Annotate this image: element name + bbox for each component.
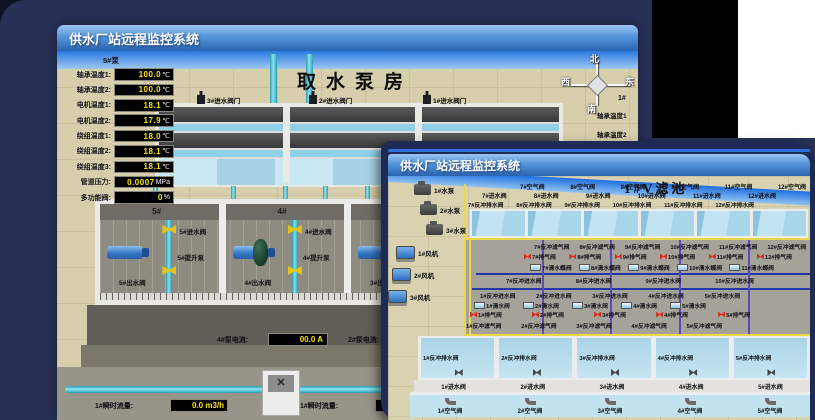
sensor-label: 绕组温度1: <box>61 131 111 141</box>
air-valve-label[interactable]: 11#空气阀 <box>725 182 753 191</box>
led-display: 18.1℃ <box>114 145 174 158</box>
valve-icon <box>670 302 681 309</box>
outlet-valve-label: 4#出水阀 <box>244 277 271 287</box>
valve-icon <box>718 312 725 318</box>
exhaust-valve-label: 7#排气阀 <box>532 252 556 261</box>
led-display: 18.1℃ <box>114 99 174 112</box>
bay-number: 5# <box>152 207 161 216</box>
equipment-item[interactable]: 3#风机 <box>388 290 430 303</box>
degassing-tank <box>253 239 268 266</box>
led-unit: ℃ <box>162 86 170 94</box>
inlet-valve-label: 4#进水阀 <box>305 226 332 236</box>
led-value: 100.0 <box>139 70 162 79</box>
valve-icon <box>524 254 531 260</box>
valve-icon <box>685 398 696 405</box>
drain-valve-label[interactable]: 2#反冲排水阀 <box>501 353 536 362</box>
led-value: 100.0 <box>139 85 162 94</box>
intake-valve[interactable]: 1#进水阀门 <box>423 91 466 105</box>
backwash-air-valve-label[interactable]: 10#反冲滤气阀 <box>670 242 709 251</box>
intake-valve-label: 1#进水阀门 <box>433 95 466 105</box>
clean-water-valve-label: 9#清水蝶阀 <box>640 263 670 272</box>
backwash-air-valve-label[interactable]: 4#反冲滤气阀 <box>631 321 666 330</box>
valve-icon <box>569 254 576 260</box>
tank-water-channel <box>159 124 559 133</box>
filter-cell <box>472 211 525 236</box>
valve-icon <box>605 398 616 405</box>
drain-valve-label[interactable]: 1#反冲排水阀 <box>423 353 458 362</box>
valve-icon <box>660 254 667 260</box>
air-valve-label[interactable]: 8#空气阀 <box>570 182 595 191</box>
clean-water-valve-label: 4#清水阀 <box>633 301 657 310</box>
valve-icon <box>474 302 485 309</box>
pump-current-label: 4#泵电流: <box>217 335 248 345</box>
clean-water-valve[interactable]: 4#清水阀 <box>621 301 657 310</box>
valve-icon[interactable] <box>611 369 619 376</box>
valve-gallery: 7#反冲滤气阀8#反冲滤气阀9#反冲滤气阀10#反冲滤气阀11#反冲滤气阀12#… <box>466 238 810 336</box>
sensor-row: 电机温度1: 18.1℃ <box>61 99 186 112</box>
air-valve-label[interactable]: 7#空气阀 <box>520 182 545 191</box>
pipe <box>472 288 810 290</box>
equipment-label: 2#水泵 <box>440 205 460 215</box>
led-display: 0.0007MPa <box>114 176 174 189</box>
valve-icon <box>656 312 663 318</box>
inlet-valve-label[interactable]: 4#进水阀 <box>652 382 731 391</box>
drain-valve-label[interactable]: 7#反冲排水阀 <box>468 200 503 209</box>
led-display: 0.0 m3/h <box>170 399 228 412</box>
led-unit: ℃ <box>162 71 170 79</box>
equipment-item[interactable]: 2#风机 <box>392 268 434 281</box>
sensor-row: 多功能阀: 0% <box>61 191 186 204</box>
flow-meter-device[interactable]: ✕ <box>262 370 300 416</box>
equipment-item[interactable]: 2#水泵 <box>420 204 460 215</box>
exhaust-valve-label: 8#排气阀 <box>577 252 601 261</box>
intake-valve[interactable]: 3#进水阀门 <box>197 91 240 105</box>
inlet-valve-label: 5#进水阀 <box>179 226 206 236</box>
equipment-label: 3#风机 <box>410 292 430 302</box>
led-unit: ℃ <box>162 117 170 125</box>
window-filter-pool: 供水厂站远程监控系统 1#V滤池 1#水泵 2#水泵 3#水泵 1#风 <box>381 141 815 420</box>
valve-icon <box>628 264 639 271</box>
valve-icon <box>423 91 431 104</box>
filter-cell: 5#反冲排水阀 <box>734 338 807 378</box>
outlet-valve-label: 5#出水阀 <box>119 277 146 287</box>
backwash-air-valve-label[interactable]: 9#反冲滤气阀 <box>625 242 660 251</box>
filter-cell: 4#反冲排水阀 <box>656 338 729 378</box>
pump-bay: 4# 4#进水阀 4#提升泵 4#出水阀 <box>226 204 352 293</box>
backwash-inlet-valve-label[interactable]: 3#反冲进水阀 <box>592 291 627 300</box>
intake-valve-label: 3#进水阀门 <box>207 95 240 105</box>
front-window-title: 供水厂站远程监控系统 <box>400 157 520 174</box>
back-window-title: 供水厂站远程监控系统 <box>69 29 199 48</box>
valve-icon <box>615 254 622 260</box>
led-display: 100.0℃ <box>114 84 174 97</box>
air-valve-label: 4#空气阀 <box>678 406 703 415</box>
flow-label: 1#瞬时流量: <box>300 401 338 411</box>
sensor-row: 绕组温度1: 18.0℃ <box>61 130 186 143</box>
backwash-inlet-valve-label[interactable]: 1#反冲进水阀 <box>480 291 515 300</box>
led-value: 18.1 <box>144 101 162 110</box>
valve-icon <box>197 91 205 104</box>
air-valve[interactable]: 3#空气阀 <box>570 395 650 417</box>
valve-icon <box>309 91 317 104</box>
led-display: 00.0 A <box>268 333 328 346</box>
drain-valve-label[interactable]: 4#反冲排水阀 <box>658 353 693 362</box>
valve-icon <box>765 398 776 405</box>
exhaust-valve[interactable]: 2#排气阀 <box>532 310 564 319</box>
exhaust-valve[interactable]: 5#排气阀 <box>718 310 750 319</box>
air-valve[interactable]: 1#空气阀 <box>410 395 490 417</box>
clean-water-valve[interactable]: 1#清水阀 <box>474 301 510 310</box>
front-window-titlebar[interactable]: 供水厂站远程监控系统 <box>388 154 810 176</box>
led-unit: ℃ <box>162 147 170 155</box>
drain-valve-label[interactable]: 5#反冲排水阀 <box>736 353 771 362</box>
air-valve-label: 1#空气阀 <box>438 406 463 415</box>
clean-water-valve[interactable]: 10#清水蝶阀 <box>677 263 722 272</box>
filter-cell <box>584 211 637 236</box>
valve-icon <box>445 398 456 405</box>
sensor-row: 绕组温度2: 18.1℃ <box>61 145 186 158</box>
sensor-label: 管道压力: <box>61 177 111 187</box>
pipe <box>65 386 410 393</box>
desktop-white-region <box>738 0 815 138</box>
flow-meter-screen: ✕ <box>268 375 294 392</box>
led-unit: ℃ <box>162 101 170 109</box>
clean-water-valve[interactable]: 11#清水蝶阀 <box>729 263 774 272</box>
clean-water-valve-label: 2#清水阀 <box>535 301 559 310</box>
sensor-row: 管道压力: 0.0007MPa <box>61 176 186 189</box>
pump-label: 4#提升泵 <box>303 252 330 262</box>
clean-water-valve[interactable]: 7#清水蝶阀 <box>530 263 572 272</box>
pump-tag: 5#泵 <box>103 55 186 68</box>
backwash-inlet-valve-label[interactable]: 8#反冲进水阀 <box>576 276 611 285</box>
led-display: 0% <box>114 191 174 204</box>
valve-icon <box>757 254 764 260</box>
equipment-item[interactable]: 1#水泵 <box>414 184 454 195</box>
inlet-valve-label[interactable]: 9#进水阀 <box>586 191 611 200</box>
valve-icon <box>579 264 590 271</box>
inlet-valve-label[interactable]: 12#进水阀 <box>748 191 776 200</box>
backwash-air-valve-label[interactable]: 1#反冲滤气阀 <box>466 321 501 330</box>
sensor-label: 绕组温度2: <box>61 146 111 156</box>
backwash-inlet-valve-label[interactable]: 4#反冲进水阀 <box>648 291 683 300</box>
valve-icon <box>729 264 740 271</box>
led-display: 18.0℃ <box>114 130 174 143</box>
equipment-icon <box>426 224 443 235</box>
valve-icon[interactable] <box>533 369 541 376</box>
sensor-label: 绕组温度3: <box>61 162 111 172</box>
equipment-icon <box>420 204 437 215</box>
equipment-icon <box>396 246 415 259</box>
clean-water-valve-label: 8#清水蝶阀 <box>591 263 621 272</box>
exhaust-valve-label: 2#排气阀 <box>540 310 564 319</box>
led-unit: MPa <box>156 179 170 186</box>
led-value: 0.0007 <box>127 178 154 187</box>
filter-cell <box>641 211 694 236</box>
inlet-valve-label[interactable]: 2#进水阀 <box>493 382 572 391</box>
valve-icon[interactable] <box>767 369 775 376</box>
equipment-icon <box>414 184 431 195</box>
window-accent-line <box>388 149 810 152</box>
led-unit: ℃ <box>162 132 170 140</box>
exhaust-valve-label: 10#排气阀 <box>668 252 695 261</box>
clean-water-valve-label: 3#清水阀 <box>584 301 608 310</box>
equipment-label: 2#风机 <box>414 270 434 280</box>
back-window-titlebar[interactable]: 供水厂站远程监控系统 <box>57 25 638 51</box>
exhaust-valve[interactable]: 7#排气阀 <box>524 252 556 261</box>
backwash-inlet-valve-label[interactable]: 5#反冲进水阀 <box>705 291 740 300</box>
exhaust-valve-label: 12#排气阀 <box>765 252 792 261</box>
filter-cell <box>753 211 806 236</box>
pump-label: 5#提升泵 <box>177 252 204 262</box>
pipe <box>231 186 236 200</box>
led-value: 17.9 <box>144 116 162 125</box>
clean-water-valve-label: 10#清水蝶阀 <box>689 263 722 272</box>
valve-icon <box>523 302 534 309</box>
inlet-valve-label[interactable]: 1#进水阀 <box>414 382 493 391</box>
led-unit: % <box>164 194 170 201</box>
clean-water-valve-label: 7#清水蝶阀 <box>542 263 572 272</box>
equipment-label: 3#水泵 <box>446 225 466 235</box>
equipment-label: 1#水泵 <box>434 185 454 195</box>
pipe <box>469 240 471 334</box>
clean-water-valve[interactable]: 8#清水蝶阀 <box>579 263 621 272</box>
inlet-valve-label[interactable]: 3#进水阀 <box>572 382 651 391</box>
exhaust-valve[interactable]: 11#排气阀 <box>709 252 744 261</box>
valve-icon <box>594 312 601 318</box>
led-value: 18.1 <box>144 162 162 171</box>
drain-valve-label[interactable]: 3#反冲排水阀 <box>579 353 614 362</box>
valve-icon[interactable] <box>689 369 697 376</box>
exhaust-valve-label: 4#排气阀 <box>664 310 688 319</box>
exhaust-valve[interactable]: 4#排气阀 <box>656 310 688 319</box>
backwash-inlet-valve-label[interactable]: 2#反冲进水阀 <box>536 291 571 300</box>
clean-water-valve-label: 5#清水阀 <box>682 301 706 310</box>
led-value: 18.1 <box>144 147 162 156</box>
air-valve-label: 5#空气阀 <box>758 406 783 415</box>
valve-icon <box>572 302 583 309</box>
sensor-label: 电机温度2: <box>61 116 111 126</box>
sensor-row: 轴承温度2: 100.0℃ <box>61 83 186 96</box>
pump-icon[interactable] <box>107 246 143 259</box>
valve-icon <box>525 398 536 405</box>
filter-cell: 1#反冲排水阀 <box>421 338 494 378</box>
backwash-air-valve-label[interactable]: 2#反冲滤气阀 <box>521 321 556 330</box>
clean-water-valve[interactable]: 2#清水阀 <box>523 301 559 310</box>
desktop-black-region <box>652 0 738 138</box>
sensor-label: 轴承温度2 <box>597 129 638 139</box>
air-valve-label[interactable]: 12#空气阀 <box>778 182 806 191</box>
intake-valve-label: 2#进水阀门 <box>319 95 352 105</box>
valve-icon[interactable] <box>455 369 463 376</box>
tank-divider <box>283 107 290 183</box>
filter-cell: 3#反冲排水阀 <box>577 338 650 378</box>
drain-valve-label[interactable]: 10#反冲排水阀 <box>613 200 652 209</box>
equipment-item[interactable]: 3#水泵 <box>426 224 466 235</box>
intake-valve[interactable]: 2#进水阀门 <box>309 91 352 105</box>
sensor-label: 轴承温度1: <box>61 70 111 80</box>
filter-cell <box>528 211 581 236</box>
valve-icon <box>621 302 632 309</box>
sensor-label: 轴承温度2: <box>61 85 111 95</box>
pipe <box>365 186 370 200</box>
backwash-air-valve-label[interactable]: 7#反冲滤气阀 <box>534 242 569 251</box>
exhaust-valve[interactable]: 12#排气阀 <box>757 252 792 261</box>
valve-icon <box>677 264 688 271</box>
drain-valve-label[interactable]: 12#反冲排水阀 <box>715 200 754 209</box>
equipment-icon <box>388 290 407 303</box>
valve-icon <box>470 312 477 318</box>
sensor-label: 电机温度1: <box>61 100 111 110</box>
clean-water-valve[interactable]: 3#清水阀 <box>572 301 608 310</box>
clean-water-valve[interactable]: 5#清水阀 <box>670 301 706 310</box>
compass-west-label: 西 <box>561 75 570 88</box>
flow-label: 1#瞬时流量: <box>95 401 133 411</box>
backwash-inlet-valve-label[interactable]: 9#反冲进水阀 <box>646 276 681 285</box>
clean-water-valve-label: 11#清水蝶阀 <box>741 263 774 272</box>
drain-valve-label[interactable]: 8#反冲排水阀 <box>516 200 551 209</box>
inlet-valve-label[interactable]: 8#进水阀 <box>534 191 559 200</box>
led-display: 17.9℃ <box>114 114 174 127</box>
inlet-valve-label[interactable]: 5#进水阀 <box>731 382 810 391</box>
inlet-valve-label[interactable]: 7#进水阀 <box>482 191 507 200</box>
inlet-valve-label[interactable]: 11#进水阀 <box>693 191 721 200</box>
filter-cell: 2#反冲排水阀 <box>499 338 572 378</box>
air-valve[interactable]: 5#空气阀 <box>730 395 810 417</box>
tank-wall <box>159 107 559 124</box>
sensor-row: 电机温度2: 17.9℃ <box>61 114 186 127</box>
compass-east-label: 东 <box>625 75 634 88</box>
equipment-icon <box>392 268 411 281</box>
led-display: 100.0℃ <box>114 68 174 81</box>
equipment-item[interactable]: 1#风机 <box>396 246 438 259</box>
exhaust-valve-label: 9#排气阀 <box>623 252 647 261</box>
backwash-inlet-valve-label[interactable]: 10#反冲进水阀 <box>715 276 754 285</box>
exhaust-valve[interactable]: 1#排气阀 <box>470 310 502 319</box>
pump-bay: 5# 5#进水阀 5#提升泵 5#出水阀 <box>100 204 226 293</box>
led-display: 18.1℃ <box>114 161 174 174</box>
drain-valve-label[interactable]: 11#反冲排水阀 <box>664 200 702 209</box>
air-valve-label: 2#空气阀 <box>518 406 543 415</box>
filter-cell <box>697 211 750 236</box>
backwash-air-valve-label[interactable]: 12#反冲滤气阀 <box>767 242 806 251</box>
led-unit: ℃ <box>162 163 170 171</box>
exhaust-valve-label: 1#排气阀 <box>478 310 502 319</box>
bay-number: 4# <box>278 207 287 216</box>
backwash-air-valve-label[interactable]: 5#反冲滤气阀 <box>687 321 722 330</box>
exhaust-valve-label: 3#排气阀 <box>602 310 626 319</box>
equipment-label: 1#风机 <box>418 248 438 258</box>
valve-icon <box>532 312 539 318</box>
air-valve-label: 3#空气阀 <box>598 406 623 415</box>
exhaust-valve[interactable]: 10#排气阀 <box>660 252 695 261</box>
valve-icon <box>530 264 541 271</box>
filter-pool-scene: 1#V滤池 1#水泵 2#水泵 3#水泵 1#风机 2# <box>388 176 810 420</box>
pipe <box>283 186 288 200</box>
air-valve[interactable]: 4#空气阀 <box>650 395 730 417</box>
backwash-inlet-valve-label[interactable]: 7#反冲进水阀 <box>506 276 541 285</box>
clean-water-valve[interactable]: 9#清水蝶阀 <box>628 263 670 272</box>
sensor-row: 轴承温度1: 100.0℃ <box>61 68 186 81</box>
valve-icon <box>709 254 716 260</box>
exhaust-valve[interactable]: 9#排气阀 <box>615 252 647 261</box>
compass-north-label: 北 <box>590 52 599 65</box>
led-value: 0 <box>158 193 163 202</box>
exhaust-valve[interactable]: 8#排气阀 <box>569 252 601 261</box>
led-value: 18.0 <box>144 132 162 141</box>
sensor-label: 多功能阀: <box>61 193 111 203</box>
backwash-air-valve-label[interactable]: 11#反冲滤气阀 <box>719 242 757 251</box>
sensor-row: 绕组温度3: 18.1℃ <box>61 160 186 173</box>
backwash-air-valve-label[interactable]: 3#反冲滤气阀 <box>576 321 611 330</box>
pump-current-label: 2#泵电流: <box>348 335 379 345</box>
air-valve[interactable]: 2#空气阀 <box>490 395 570 417</box>
exhaust-valve-label: 5#排气阀 <box>726 310 750 319</box>
pipe <box>323 186 328 200</box>
clean-water-valve-label: 1#清水阀 <box>486 301 510 310</box>
scene-title: 1#V滤池 <box>624 178 687 197</box>
sensor-panel: 5#泵 轴承温度1: 100.0℃ 轴承温度2: 100.0℃ 电机温度1: 1… <box>61 55 186 207</box>
desktop: 供水厂站远程监控系统 取水泵房 3#进水阀门 <box>0 0 815 420</box>
scene-title: 取水泵房 <box>297 67 413 94</box>
exhaust-valve-label: 11#排气阀 <box>717 252 744 261</box>
backwash-air-valve-label[interactable]: 8#反冲滤气阀 <box>579 242 614 251</box>
drain-valve-label[interactable]: 9#反冲排水阀 <box>564 200 599 209</box>
pipe <box>476 273 810 275</box>
exhaust-valve[interactable]: 3#排气阀 <box>594 310 626 319</box>
